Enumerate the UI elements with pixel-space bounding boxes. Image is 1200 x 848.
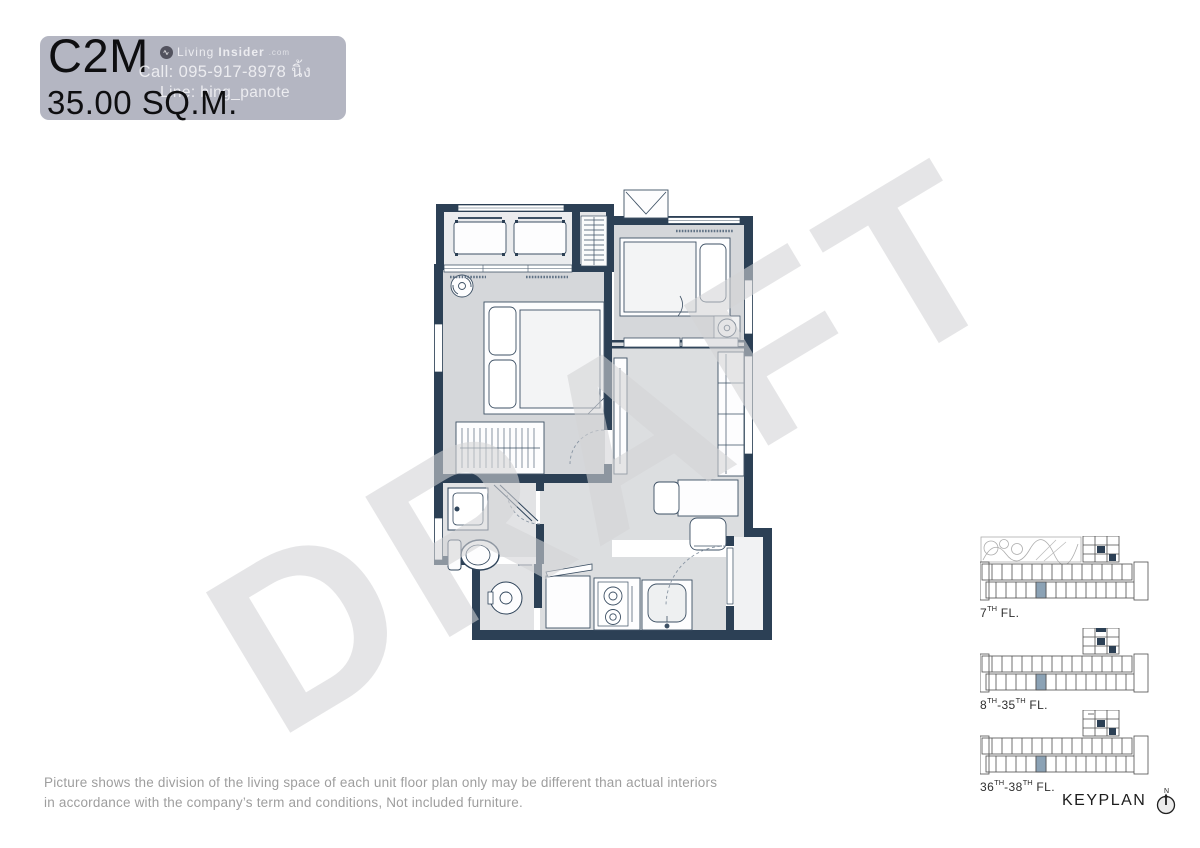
keyplan-title: KEYPLAN [1062,792,1146,810]
bedroom1-window [435,324,443,372]
toilet [448,540,499,570]
mattress [520,310,600,408]
core-tower [1083,536,1119,562]
contact-call-line: Call: 095-917-8978 นิ้ง [106,62,344,83]
living-insider-logo-icon: ∿ [160,46,173,59]
keyplan-8-35-svg [980,628,1152,694]
compass-icon: N [1154,786,1180,816]
keyplan-8-35-floor: 8TH-35TH FL. [980,628,1156,712]
unit-area: 35.00 SQ.M. [47,84,238,122]
brand-living-text: Living [177,45,214,60]
washing-machine [490,582,522,614]
highlighted-unit [1036,582,1046,598]
unit-header-badge: C2M ∿ LivingInsider.com Call: 095-917-89… [40,36,346,120]
unit-rows [980,736,1148,774]
keyplan-36-38-floor: 36TH-38TH FL. [980,710,1156,794]
faucet [665,624,669,628]
floor-plan-svg [428,184,778,649]
disclaimer-line-1: Picture shows the division of the living… [44,773,784,793]
unit-rows [980,654,1148,692]
mattress [624,242,696,312]
keyplan-legend: KEYPLAN N [1062,786,1180,816]
keyplan-36-38-svg [980,710,1152,776]
unit-rows [980,562,1148,600]
balcony-bottom-right-floor [734,537,763,631]
core-tower [1083,628,1119,654]
pillow [700,244,726,302]
keyplan-7th-floor: 7TH FL. [980,536,1156,620]
highlighted-unit [1036,674,1046,690]
living-insider-brand: ∿ LivingInsider.com [106,45,344,60]
bedroom2-condenser [624,190,668,218]
cabinet [546,576,590,628]
pillow [489,307,516,355]
fan-icon [714,316,740,340]
floorplan-page: C2M ∿ LivingInsider.com Call: 095-917-89… [0,0,1200,848]
keyplan-7th-svg [980,536,1152,602]
bedroom2-side-window [745,280,753,334]
compass-north-label: N [1164,788,1169,795]
bathroom-window [435,518,443,560]
living-side-window [745,356,753,454]
brand-insider-text: Insider [218,45,264,60]
disclaimer-line-2: in accordance with the company’s term an… [44,793,784,813]
disclaimer: Picture shows the division of the living… [44,773,784,812]
floor-plan [428,184,778,649]
sliding-partition [612,338,744,349]
drying-rack [581,216,607,266]
stool [690,518,726,550]
brand-com-text: .com [269,48,290,58]
highlighted-unit [1036,756,1046,772]
balcony-sliding-panel [727,548,733,604]
desk [678,480,738,516]
chair [654,482,679,514]
pillow [489,360,516,408]
tv-console [614,358,627,474]
garden-deck [981,537,1081,565]
keyplan-7th-label: 7TH FL. [980,604,1156,620]
hall-floor [540,483,612,559]
core-tower [1083,710,1119,736]
